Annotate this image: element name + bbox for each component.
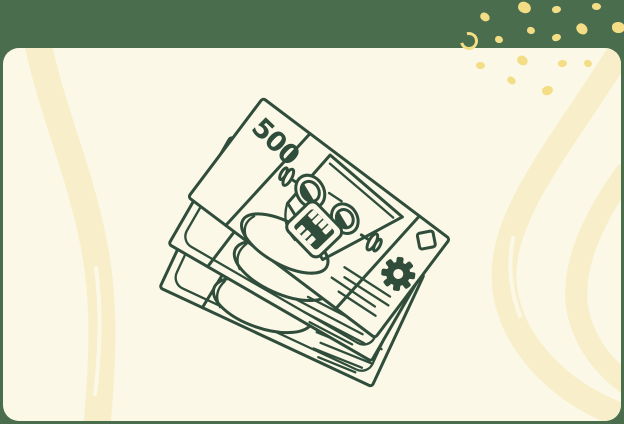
confetti-dot (612, 22, 624, 33)
money-robot-illustration: 500 (3, 48, 621, 421)
content-panel: 500 (3, 48, 621, 421)
confetti-dot (476, 62, 485, 69)
confetti-dot (592, 3, 601, 10)
card-background: 500 (0, 0, 624, 424)
